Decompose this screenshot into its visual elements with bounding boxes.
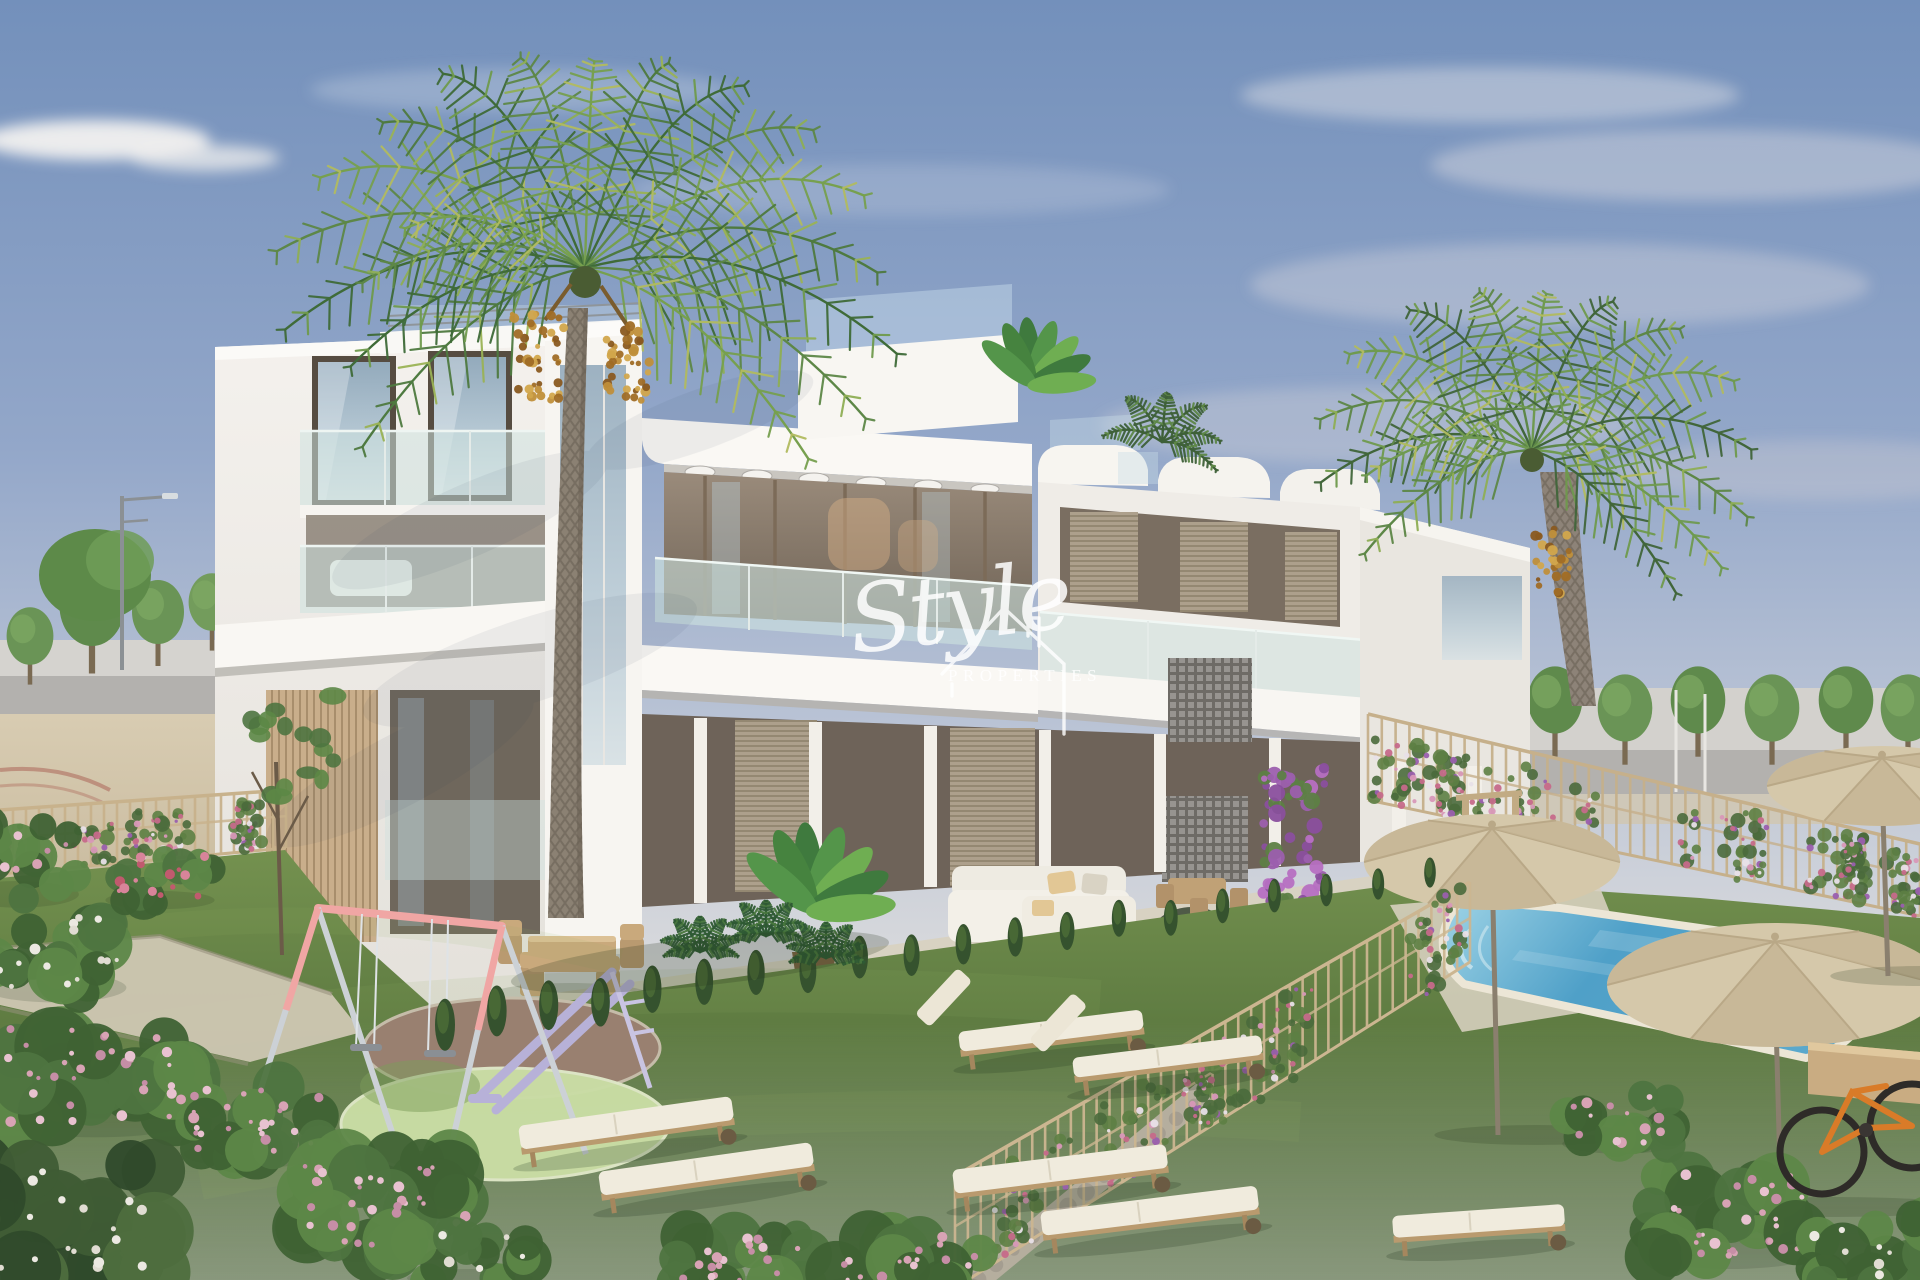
lattice-breeze-block [1162,796,1248,882]
glass-balustrade [385,800,557,880]
planter-box [1808,1042,1920,1104]
lattice-breeze-block [1168,658,1252,742]
right-end-wing [1360,507,1530,862]
property-render-image: Style PROPERTIES [0,0,1920,1280]
